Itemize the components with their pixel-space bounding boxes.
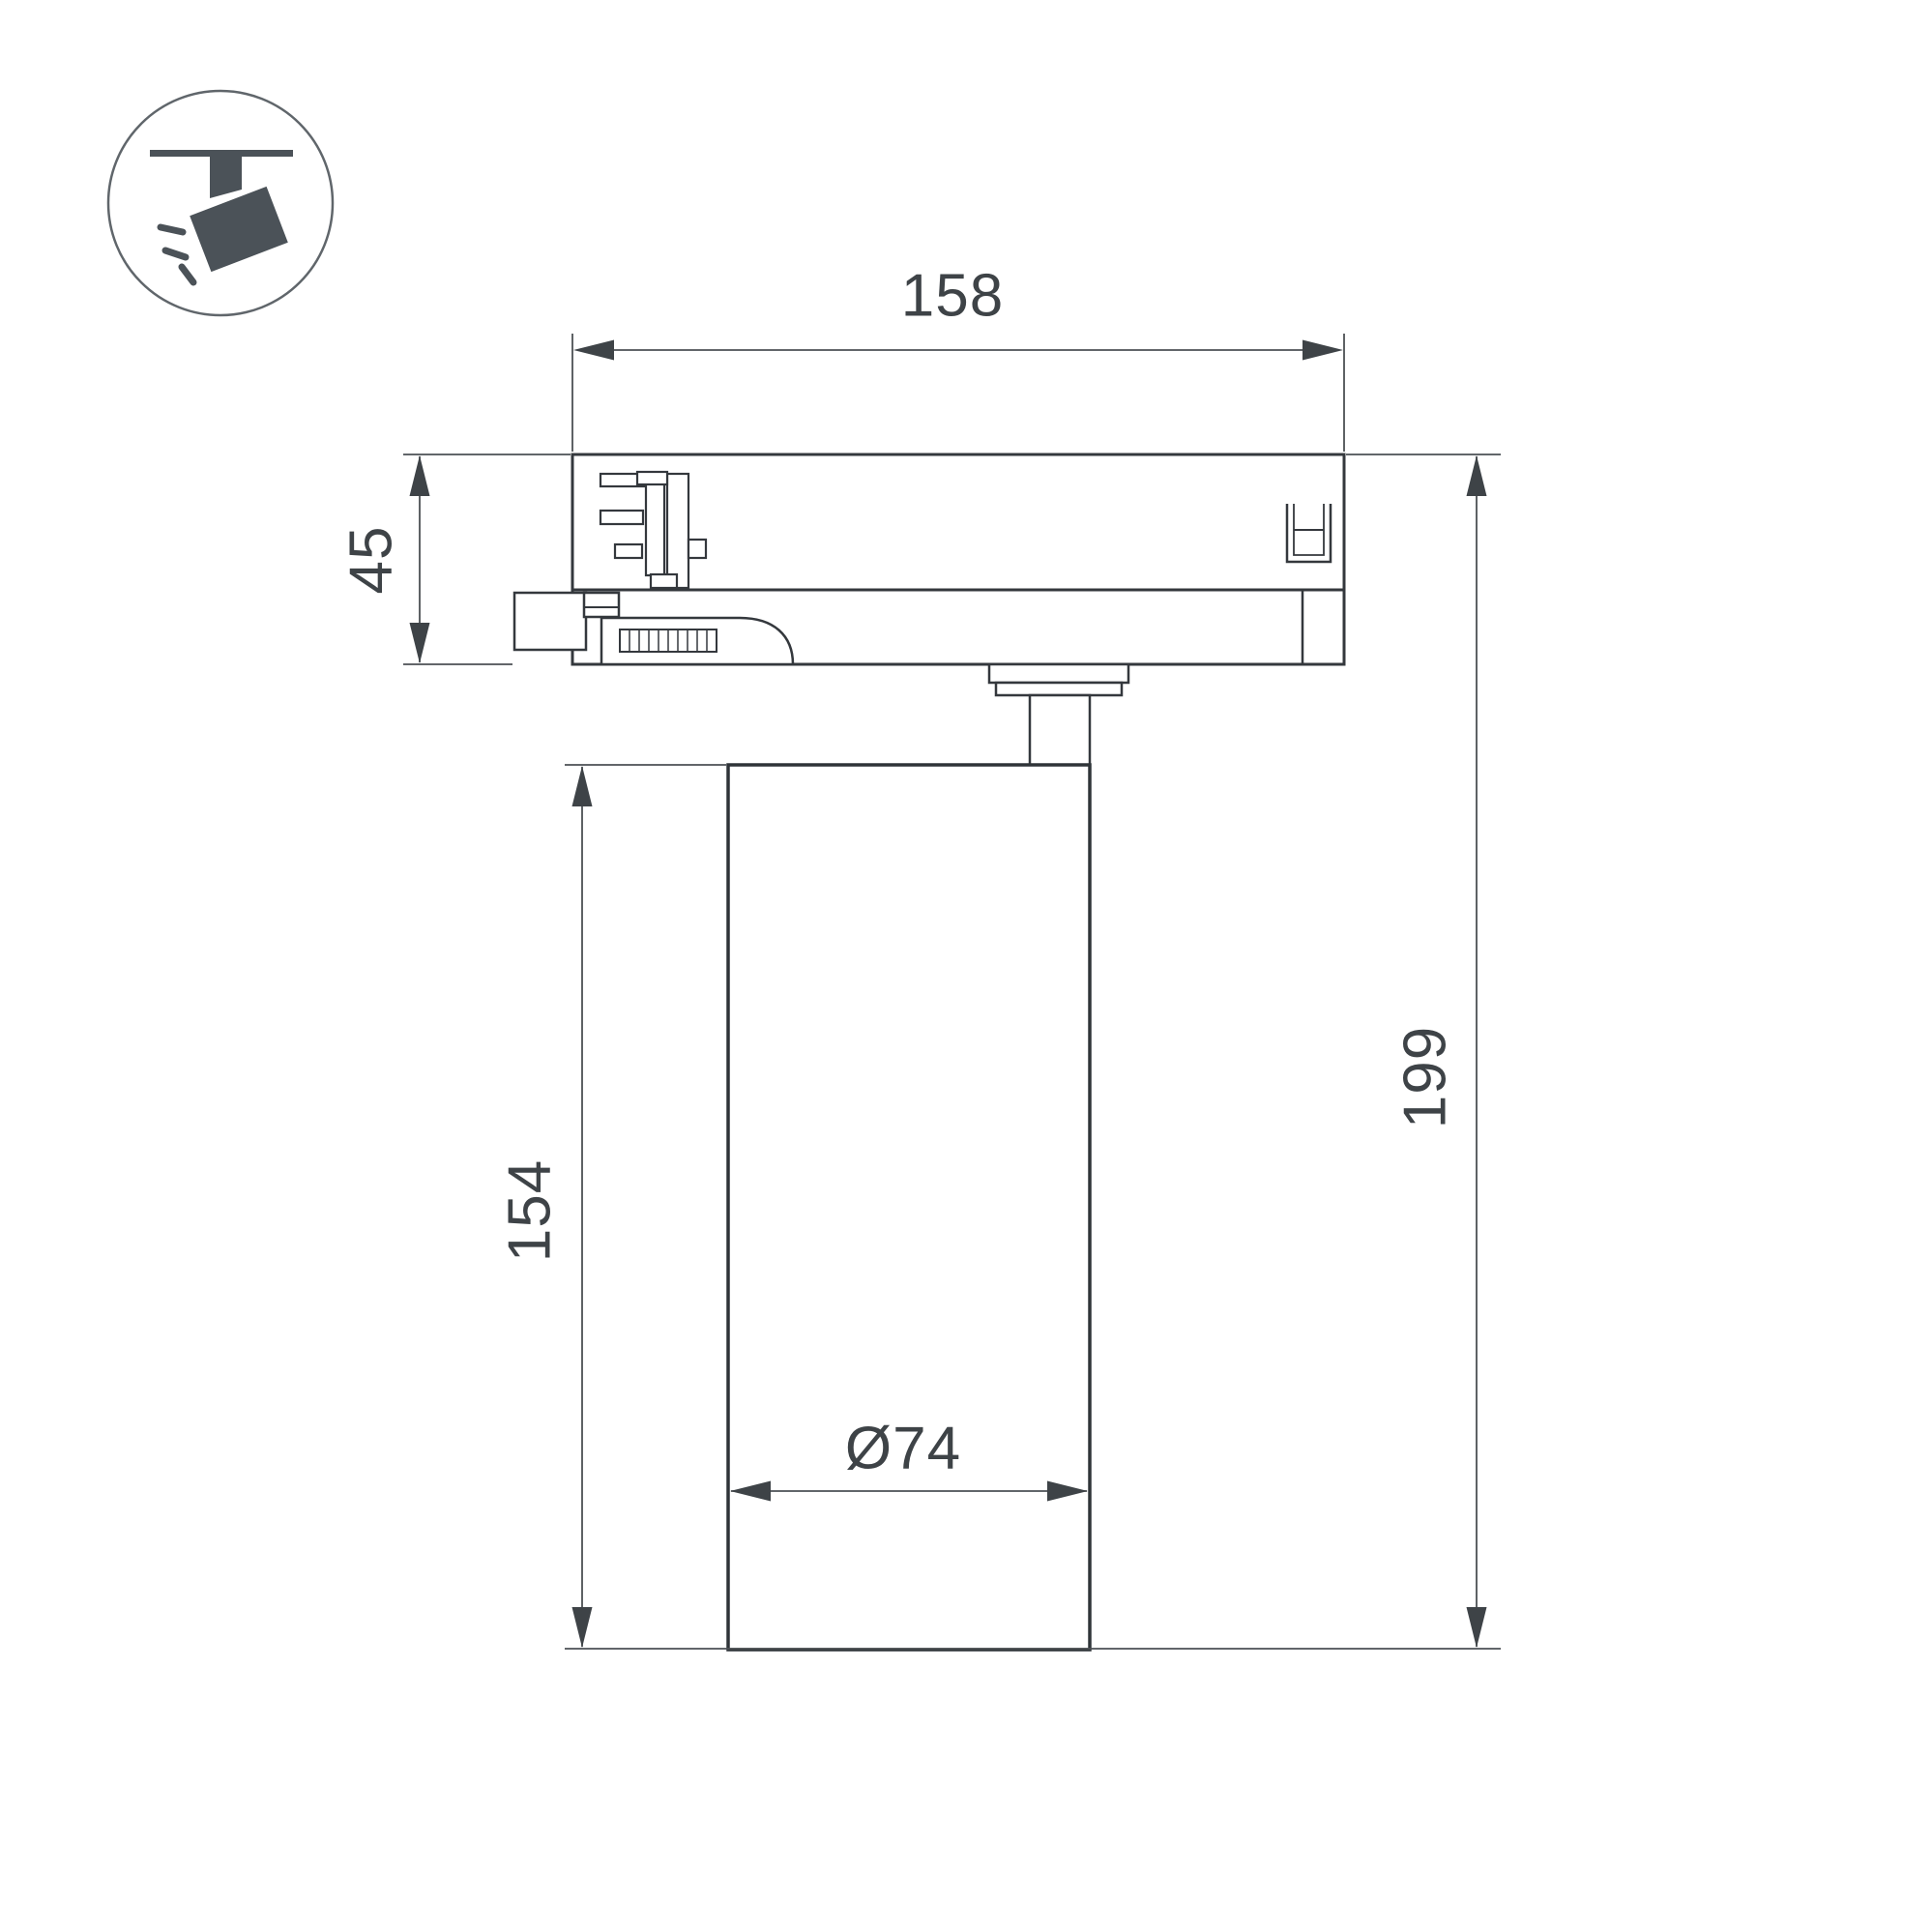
pin-carrier-notch [688,540,706,558]
pin-prong-low [615,544,642,558]
pin-contact-foot [651,574,677,588]
pivot-stem [1030,695,1090,766]
latch-bracket [584,593,619,617]
latch-box [514,593,586,650]
arrow-154-up [572,766,593,806]
flange-lower [996,683,1122,695]
technical-drawing-page: 158 45 154 199 Ø74 [0,0,1932,1932]
arrow-154-down [572,1607,593,1648]
dim-label-adapter-height: 45 [337,526,406,595]
arrow-158-left [573,340,614,361]
arrow-199-down [1467,1607,1487,1648]
arrow-45-up [410,455,430,496]
dim-label-total-height: 199 [1391,1026,1460,1128]
pin-carrier-body [667,474,688,588]
arrow-158-right [1303,340,1343,361]
dim-label-top-width: 158 [901,262,1004,331]
arrow-45-down [410,623,430,663]
dim-label-diameter: Ø74 [845,1415,961,1483]
pin-prong-mid [600,511,643,524]
mount-flange [989,664,1128,766]
lamp-body [728,765,1090,1650]
pin-contact-bar [646,483,664,575]
dim-label-body-height: 154 [496,1159,565,1262]
driver-housing [601,618,793,664]
pin-contact-cap [637,472,667,484]
flange-upper [989,664,1128,683]
arrow-199-up [1467,455,1487,496]
